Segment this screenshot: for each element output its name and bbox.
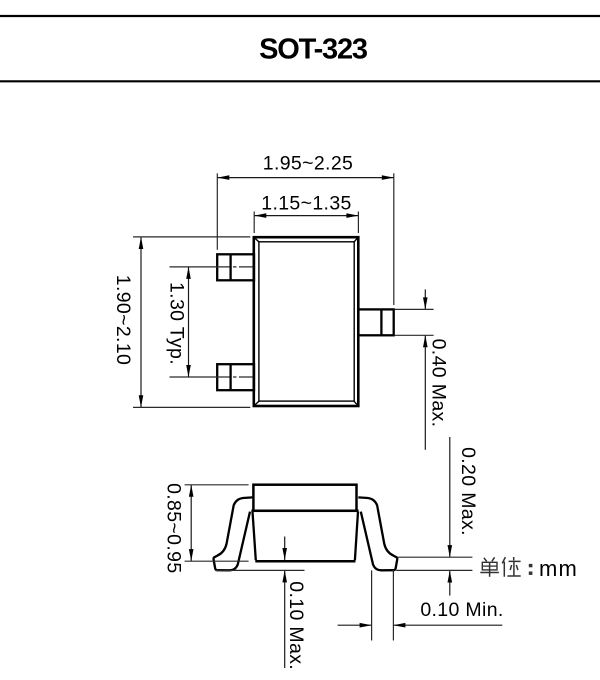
- svg-text:1.90~2.10: 1.90~2.10: [112, 275, 134, 365]
- svg-text:0.20 Max.: 0.20 Max.: [457, 447, 479, 536]
- svg-text:0.10 Min.: 0.10 Min.: [420, 599, 503, 621]
- svg-text:1.30 Typ.: 1.30 Typ.: [165, 282, 187, 365]
- svg-text:0.40 Max.: 0.40 Max.: [427, 339, 449, 428]
- svg-text:1.15~1.35: 1.15~1.35: [261, 193, 351, 215]
- svg-text:1.95~2.25: 1.95~2.25: [263, 153, 353, 175]
- svg-text:0.85~0.95: 0.85~0.95: [162, 483, 184, 573]
- svg-text:mm: mm: [539, 556, 578, 581]
- svg-text:SOT-323: SOT-323: [259, 34, 368, 66]
- svg-text:0.10 Max.: 0.10 Max.: [285, 581, 307, 670]
